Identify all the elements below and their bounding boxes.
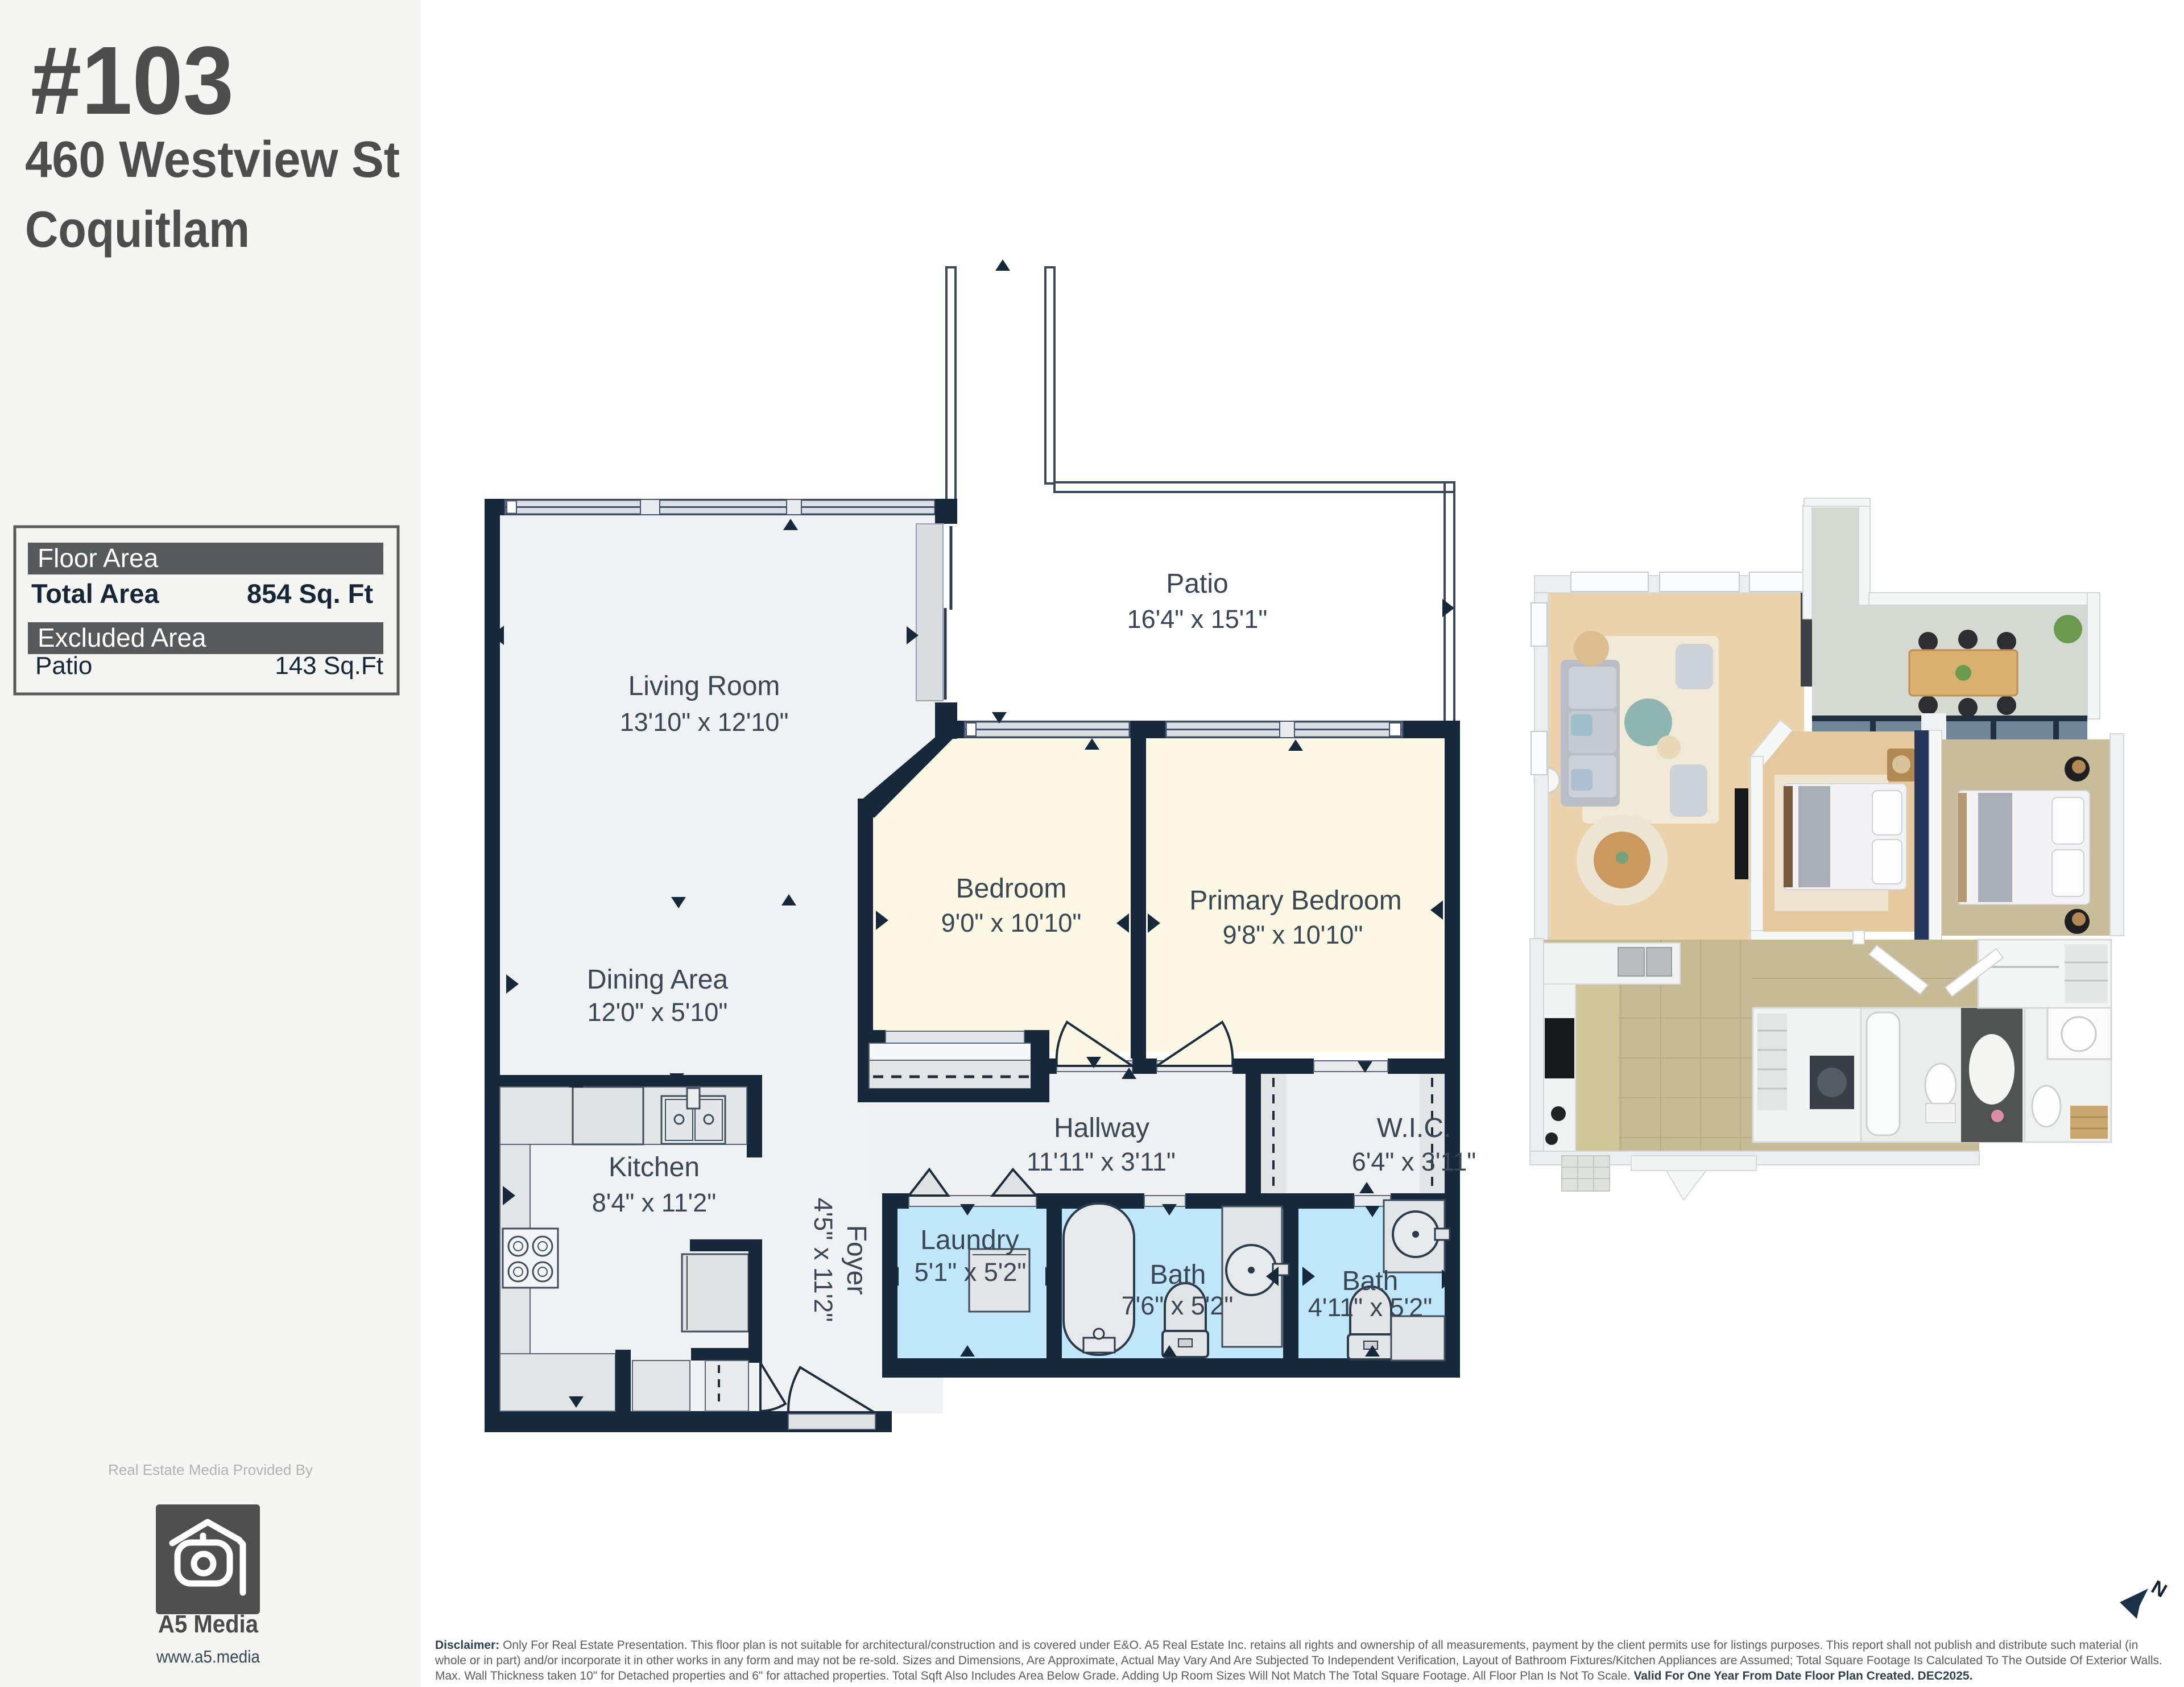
svg-text:Living Room: Living Room xyxy=(628,671,780,701)
svg-text:www.a5.media: www.a5.media xyxy=(156,1647,260,1667)
svg-text:Coquitlam: Coquitlam xyxy=(25,201,250,258)
svg-text:Disclaimer: Only For Real Est: Disclaimer: Only For Real Estate Present… xyxy=(435,1639,2138,1652)
svg-text:Real Estate Media Provided By: Real Estate Media Provided By xyxy=(108,1461,313,1478)
svg-text:Floor Area: Floor Area xyxy=(38,543,159,573)
svg-text:A5 Media: A5 Media xyxy=(158,1610,258,1638)
svg-text:460 Westview St: 460 Westview St xyxy=(25,131,400,188)
svg-text:854 Sq. Ft: 854 Sq. Ft xyxy=(247,578,373,609)
svg-text:Patio: Patio xyxy=(35,652,92,680)
svg-text:6'4" x 3'11": 6'4" x 3'11" xyxy=(1352,1147,1476,1176)
svg-text:9'8" x 10'10": 9'8" x 10'10" xyxy=(1223,920,1363,949)
svg-text:5'1" x 5'2": 5'1" x 5'2" xyxy=(915,1258,1027,1287)
svg-text:11'11" x 3'11": 11'11" x 3'11" xyxy=(1027,1147,1176,1176)
svg-text:Foyer: Foyer xyxy=(841,1225,871,1295)
svg-text:143 Sq.Ft: 143 Sq.Ft xyxy=(275,652,383,680)
svg-text:Hallway: Hallway xyxy=(1054,1113,1149,1143)
svg-text:Bath: Bath xyxy=(1342,1266,1399,1296)
svg-text:Excluded Area: Excluded Area xyxy=(38,623,206,652)
svg-text:Max. Wall Thickness taken 10": Max. Wall Thickness taken 10" for Detach… xyxy=(435,1669,1972,1682)
svg-text:16'4" x 15'1": 16'4" x 15'1" xyxy=(1127,605,1268,634)
svg-text:whole or in part) and/or incor: whole or in part) and/or incorporate it … xyxy=(435,1654,2162,1667)
svg-text:13'10" x 12'10": 13'10" x 12'10" xyxy=(620,708,789,737)
svg-text:Dining Area: Dining Area xyxy=(587,965,728,995)
svg-text:4'11" x 5'2": 4'11" x 5'2" xyxy=(1308,1293,1432,1322)
svg-text:W.I.C.: W.I.C. xyxy=(1377,1113,1451,1143)
svg-text:9'0" x 10'10": 9'0" x 10'10" xyxy=(941,908,1082,937)
svg-text:8'4" x 11'2": 8'4" x 11'2" xyxy=(592,1188,716,1217)
svg-text:Patio: Patio xyxy=(1166,569,1228,599)
svg-text:Primary Bedroom: Primary Bedroom xyxy=(1189,886,1401,916)
svg-text:7'6" x 5'2": 7'6" x 5'2" xyxy=(1122,1291,1234,1320)
svg-text:#103: #103 xyxy=(31,27,234,135)
svg-text:Bath: Bath xyxy=(1150,1260,1206,1290)
svg-text:Kitchen: Kitchen xyxy=(609,1152,700,1182)
svg-text:Bedroom: Bedroom xyxy=(956,874,1067,904)
svg-text:12'0" x 5'10": 12'0" x 5'10" xyxy=(588,998,728,1027)
svg-text:Laundry: Laundry xyxy=(920,1225,1019,1255)
svg-text:Total Area: Total Area xyxy=(31,578,159,609)
svg-text:4'5" x 11'2": 4'5" x 11'2" xyxy=(809,1198,838,1322)
